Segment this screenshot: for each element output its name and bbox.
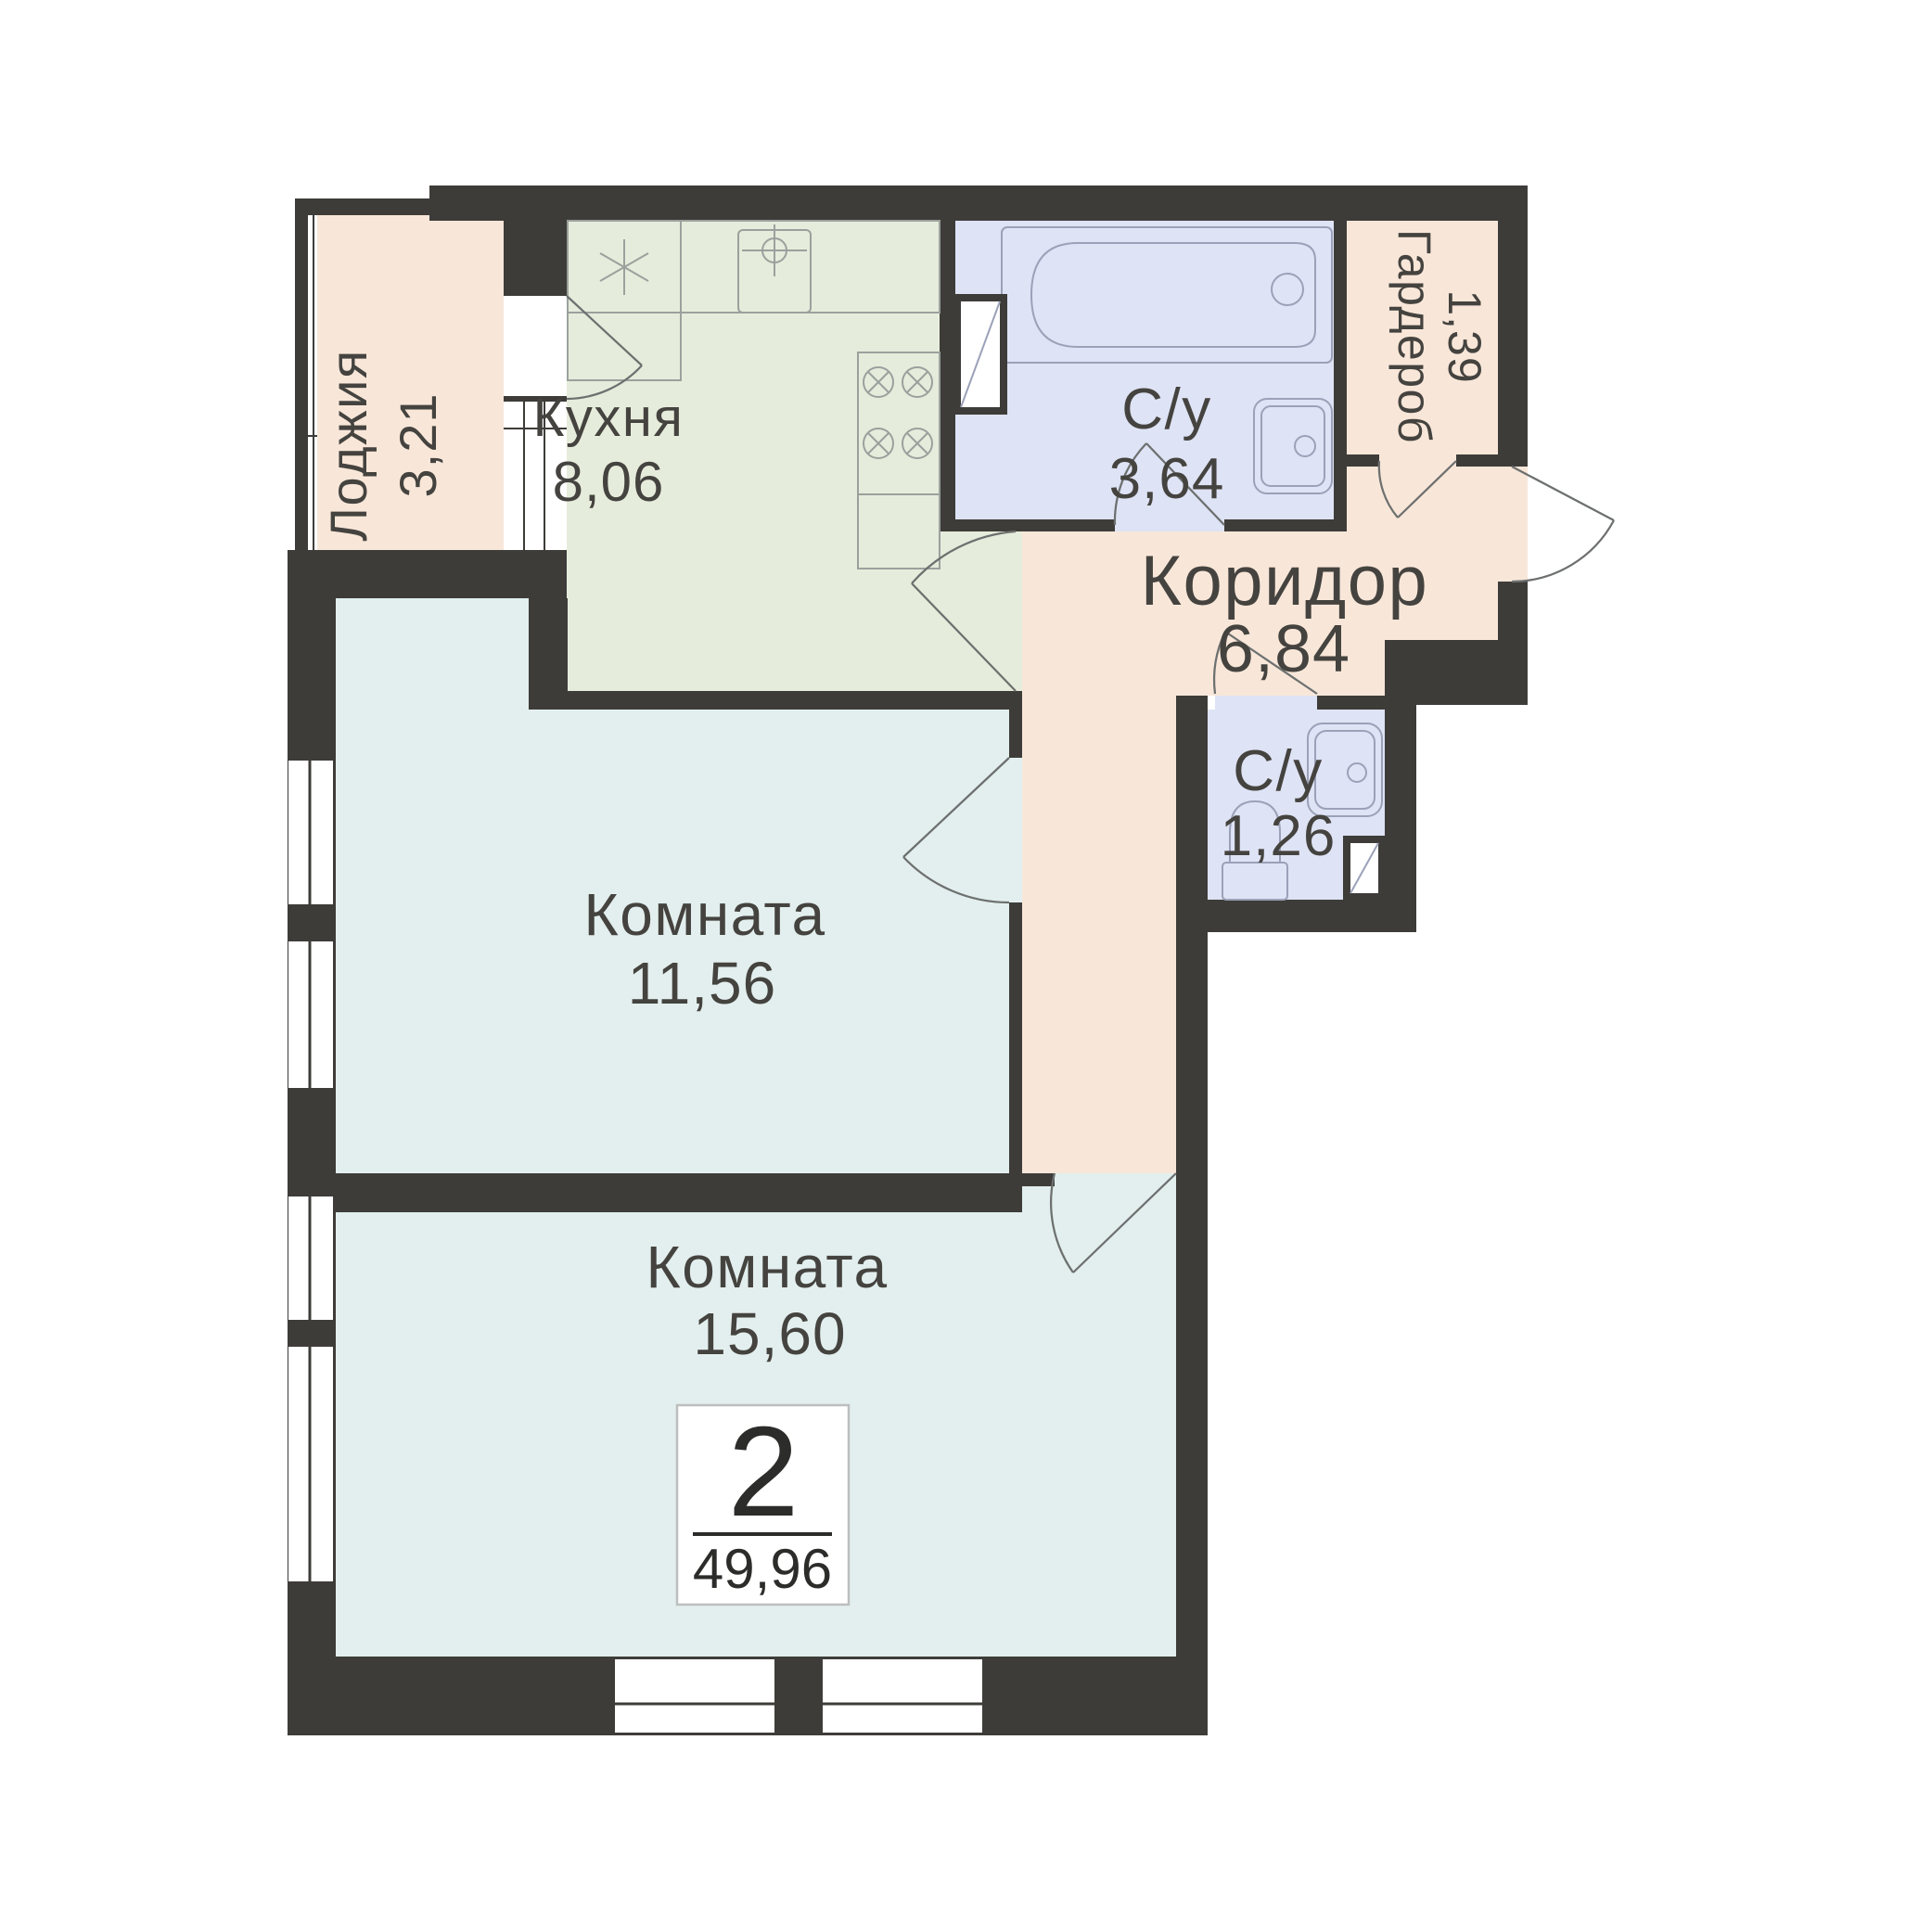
wall-room-1-right-lower [1009, 902, 1022, 1173]
loggia-label: Лоджия [319, 349, 377, 541]
kitchen-area: 8,06 [553, 451, 665, 513]
room-2-area: 15,60 [693, 1300, 846, 1367]
bathroom-label: С/у [1121, 377, 1212, 441]
corridor-area: 6,84 [1217, 612, 1350, 686]
wall-wc-top [1317, 696, 1385, 710]
wall-wardrobe-bottom-left [1347, 454, 1379, 467]
balcony-door-opening [504, 296, 567, 399]
wardrobe-area: 1,39 [1439, 289, 1491, 383]
wall-bathroom-left [940, 221, 955, 531]
total-badge: 2 49,96 [677, 1401, 849, 1605]
wc-area: 1,26 [1221, 804, 1337, 868]
badge-rooms-count: 2 [728, 1401, 800, 1543]
wardrobe-door-opening [1379, 454, 1456, 467]
bathroom-door-opening [1115, 519, 1224, 531]
wall-rooms-divider-stub [1022, 1173, 1055, 1186]
wall-rooms-divider [288, 1173, 1022, 1212]
badge-total-area: 49,96 [693, 1538, 832, 1600]
wall-right-top [1498, 186, 1528, 467]
room-1-door-opening [1009, 758, 1022, 902]
window-bottom-2 [823, 1659, 982, 1733]
wc-door-opening [1215, 696, 1317, 710]
wall-bathroom-bottom-left [940, 519, 1115, 531]
wall-kitchen-bottom [529, 691, 1022, 710]
wc-label: С/у [1233, 739, 1324, 803]
wall-loggia-top [295, 198, 429, 215]
wall-wc-bottom [1176, 900, 1416, 932]
wall-loggia-left [295, 198, 308, 598]
kitchen-label: Кухня [533, 388, 685, 448]
wardrobe-label: Гардероб [1388, 229, 1440, 444]
bathroom-area: 3,64 [1109, 447, 1225, 511]
wall-wc-left [1176, 696, 1208, 932]
wall-wc-right [1385, 640, 1416, 932]
entrance-door-opening [1498, 467, 1528, 582]
room-1-area: 11,56 [628, 950, 776, 1017]
floor-plan: Лоджия 3,21 Кухня 8,06 С/у 3,64 Гардероб… [0, 0, 1932, 1932]
kitchen-door-opening [1009, 531, 1022, 691]
wall-bathroom-bottom-right [1224, 519, 1347, 531]
wall-right-lower [1176, 932, 1208, 1657]
window-bottom-1 [615, 1659, 774, 1733]
floor-plan-svg: Лоджия 3,21 Кухня 8,06 С/у 3,64 Гардероб… [0, 0, 1932, 1932]
wall-loggia-kitchen-divider [504, 186, 567, 296]
wall-bathroom-wardrobe-divider [1334, 221, 1347, 531]
room-2-label: Комната [646, 1234, 888, 1300]
corridor-label: Коридор [1141, 542, 1429, 621]
wall-wardrobe-bottom-right [1456, 454, 1498, 467]
loggia-area: 3,21 [389, 393, 447, 498]
wall-top [429, 186, 1528, 221]
wall-room-1-right-upper [1009, 710, 1022, 758]
room-1-label: Комната [583, 881, 825, 948]
